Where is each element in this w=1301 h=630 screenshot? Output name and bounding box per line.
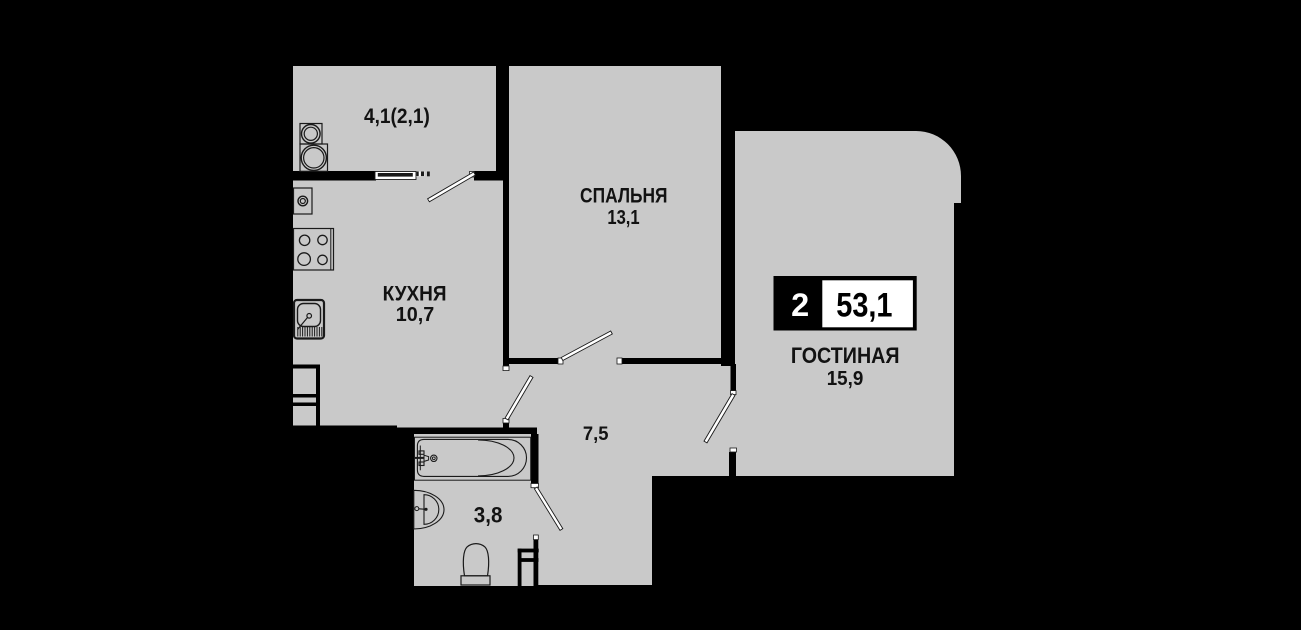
svg-text:2: 2 bbox=[791, 287, 809, 323]
svg-text:15,9: 15,9 bbox=[827, 367, 864, 390]
svg-text:ГОСТИНАЯ: ГОСТИНАЯ bbox=[791, 343, 900, 368]
svg-text:3,8: 3,8 bbox=[474, 503, 503, 528]
svg-text:КУХНЯ: КУХНЯ bbox=[383, 281, 447, 305]
svg-text:10,7: 10,7 bbox=[396, 303, 435, 326]
svg-text:СПАЛЬНЯ: СПАЛЬНЯ bbox=[580, 184, 668, 207]
svg-text:4,1(2,1): 4,1(2,1) bbox=[364, 105, 430, 128]
svg-text:53,1: 53,1 bbox=[836, 287, 892, 325]
svg-text:7,5: 7,5 bbox=[583, 423, 609, 445]
svg-text:13,1: 13,1 bbox=[607, 206, 639, 229]
